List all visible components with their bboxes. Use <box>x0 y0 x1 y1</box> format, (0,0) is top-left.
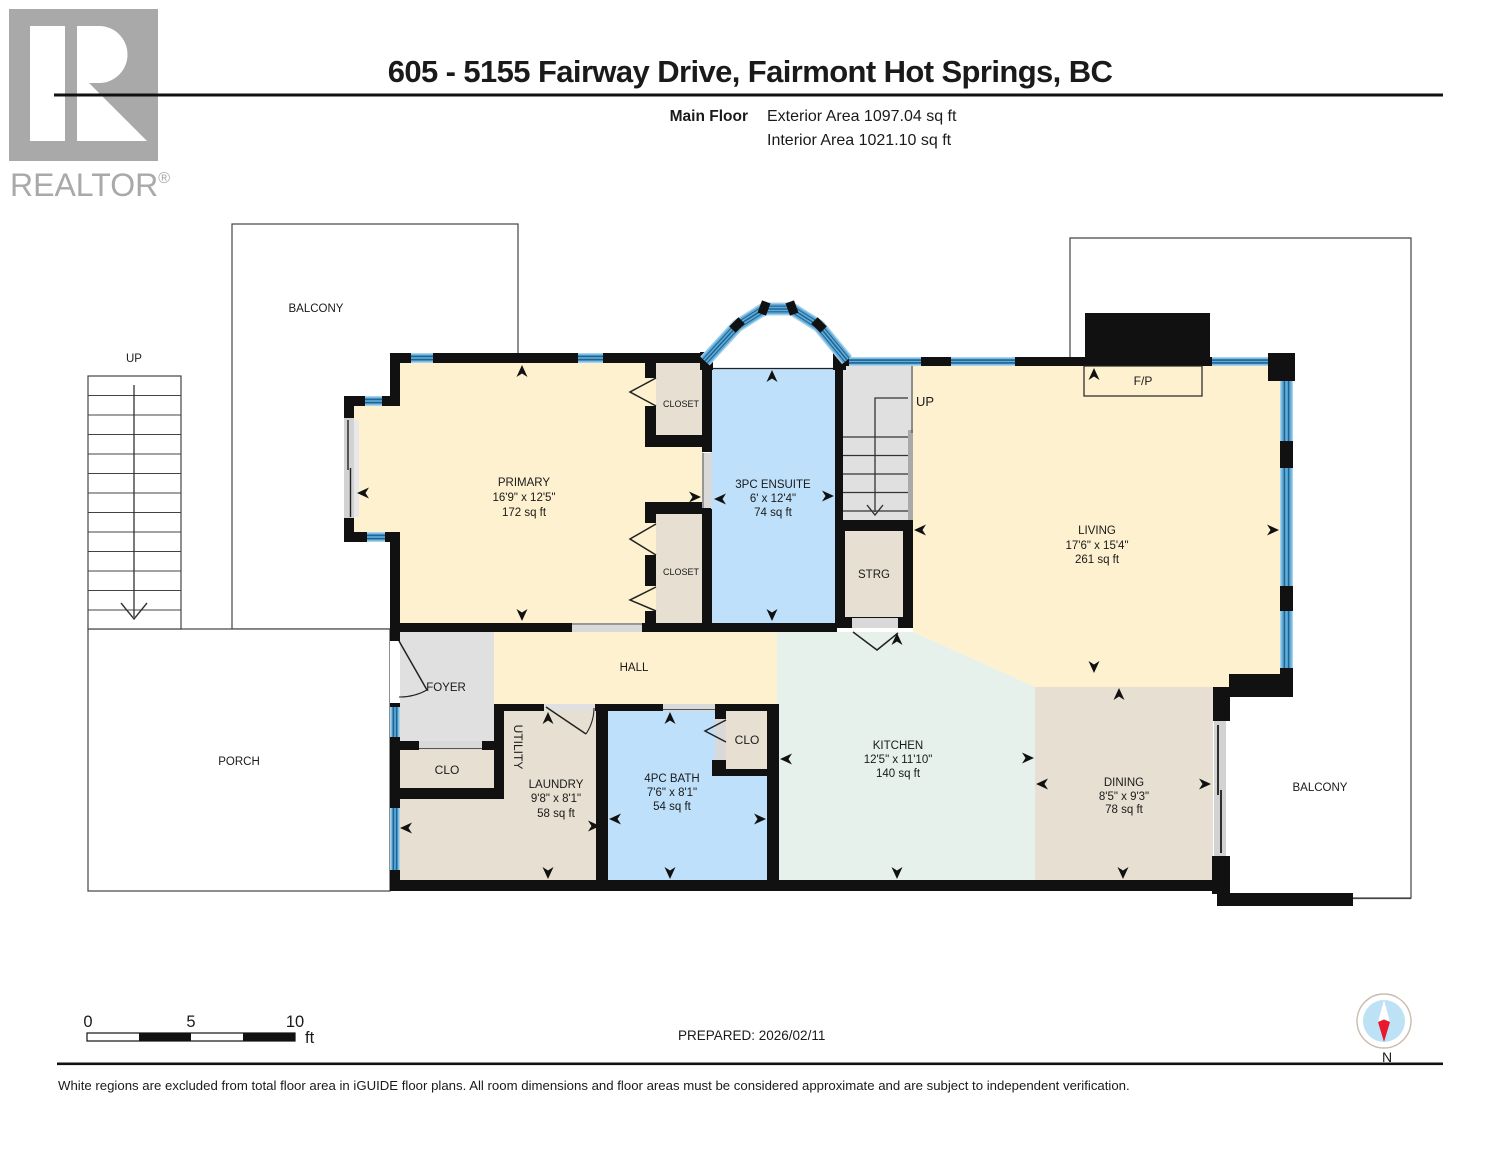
svg-text:17'6" x 15'4": 17'6" x 15'4" <box>1065 540 1128 552</box>
svg-text:Exterior Area 1097.04 sq ft: Exterior Area 1097.04 sq ft <box>767 108 957 125</box>
svg-text:140 sq ft: 140 sq ft <box>876 768 921 780</box>
svg-text:LIVING: LIVING <box>1078 525 1116 537</box>
svg-text:78 sq ft: 78 sq ft <box>1105 804 1144 816</box>
svg-text:White regions are excluded fro: White regions are excluded from total fl… <box>58 1078 1130 1093</box>
svg-text:HALL: HALL <box>620 662 649 674</box>
svg-text:9'8" x 8'1": 9'8" x 8'1" <box>531 793 581 805</box>
svg-text:CLO: CLO <box>435 763 460 777</box>
svg-text:12'5" x 11'10": 12'5" x 11'10" <box>864 754 933 766</box>
svg-text:10: 10 <box>286 1013 304 1031</box>
svg-text:UTILITY: UTILITY <box>511 725 525 770</box>
svg-text:F/P: F/P <box>1134 374 1153 388</box>
svg-text:BALCONY: BALCONY <box>289 303 344 315</box>
svg-text:PORCH: PORCH <box>218 756 260 768</box>
svg-text:3PC ENSUITE: 3PC ENSUITE <box>735 479 811 491</box>
svg-text:UP: UP <box>126 353 142 365</box>
svg-text:UP: UP <box>916 394 934 409</box>
svg-text:STRG: STRG <box>858 569 890 581</box>
svg-text:5: 5 <box>186 1013 195 1031</box>
svg-text:4PC BATH: 4PC BATH <box>644 773 699 785</box>
svg-text:KITCHEN: KITCHEN <box>873 740 923 752</box>
svg-text:REALTOR®: REALTOR® <box>10 167 170 203</box>
svg-text:PREPARED: 2026/02/11: PREPARED: 2026/02/11 <box>678 1028 825 1043</box>
svg-text:74 sq ft: 74 sq ft <box>754 507 793 519</box>
svg-text:CLO: CLO <box>735 733 760 747</box>
svg-text:CLOSET: CLOSET <box>663 567 700 577</box>
svg-text:DINING: DINING <box>1104 777 1144 789</box>
svg-text:0: 0 <box>83 1013 92 1031</box>
svg-text:58 sq ft: 58 sq ft <box>537 808 576 820</box>
svg-text:7'6" x 8'1": 7'6" x 8'1" <box>647 787 697 799</box>
svg-text:16'9" x 12'5": 16'9" x 12'5" <box>492 492 555 504</box>
svg-text:LAUNDRY: LAUNDRY <box>529 779 584 791</box>
svg-text:PRIMARY: PRIMARY <box>498 477 551 489</box>
svg-text:BALCONY: BALCONY <box>1293 782 1348 794</box>
svg-text:8'5" x 9'3": 8'5" x 9'3" <box>1099 791 1149 803</box>
svg-text:605 - 5155 Fairway Drive, Fair: 605 - 5155 Fairway Drive, Fairmont Hot S… <box>388 54 1113 89</box>
svg-text:Main Floor: Main Floor <box>670 108 748 125</box>
svg-text:6' x 12'4": 6' x 12'4" <box>750 493 796 505</box>
svg-text:261 sq ft: 261 sq ft <box>1075 554 1120 566</box>
svg-text:54 sq ft: 54 sq ft <box>653 801 692 813</box>
svg-text:CLOSET: CLOSET <box>663 399 700 409</box>
svg-text:172 sq ft: 172 sq ft <box>502 507 547 519</box>
svg-text:ft: ft <box>305 1029 315 1047</box>
svg-text:FOYER: FOYER <box>426 682 466 694</box>
svg-text:Interior Area 1021.10 sq ft: Interior Area 1021.10 sq ft <box>767 132 952 149</box>
